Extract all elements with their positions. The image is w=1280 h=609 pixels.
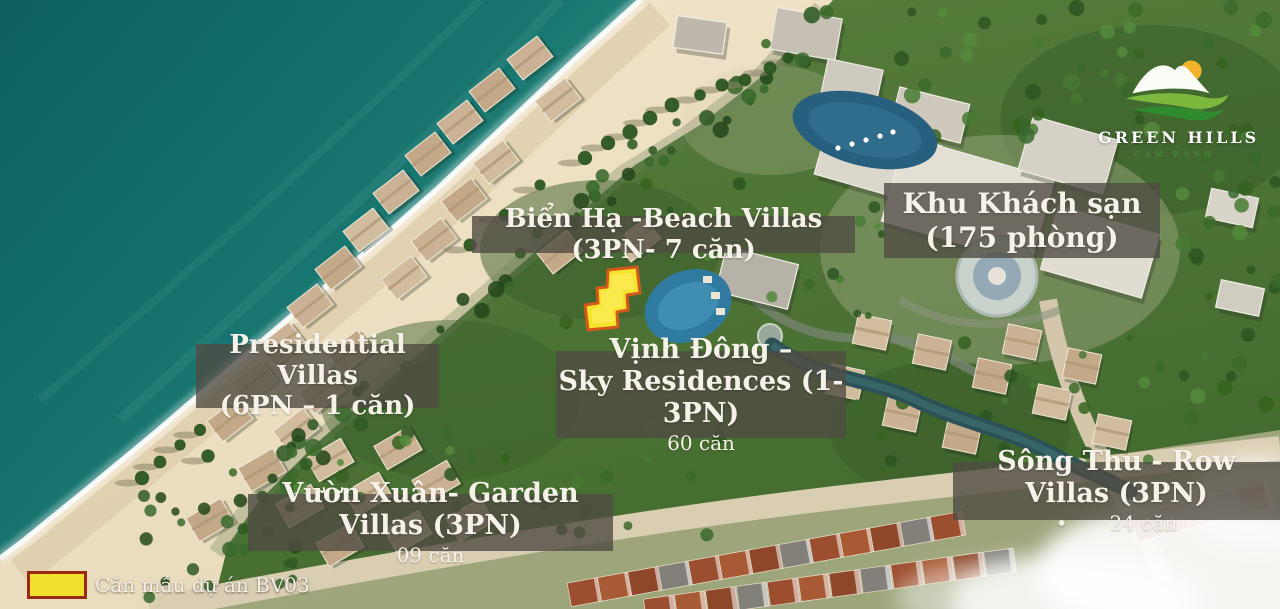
logo-emblem <box>1098 50 1252 124</box>
hotel-subtitle: (175 phòng) <box>884 221 1160 254</box>
green-hills-logo: GREEN HILLS CAM RANH <box>1098 50 1252 159</box>
wave-dark-icon <box>1132 107 1224 121</box>
garden-count: 09 căn <box>248 544 613 568</box>
label-beach-villas: Biển Hạ -Beach Villas (3PN- 7 căn) <box>472 216 855 253</box>
sky-subtitle: Sky Residences (1-3PN) <box>556 366 846 430</box>
beach-villas-title: Biển Hạ -Beach Villas (3PN- 7 căn) <box>472 204 855 265</box>
logo-title: GREEN HILLS <box>1098 128 1252 147</box>
label-hotel: Khu Khách sạn (175 phòng) <box>884 183 1160 258</box>
label-presidential-villas: Presidential Villas (6PN – 1 căn) <box>196 344 439 408</box>
logo-subtitle: CAM RANH <box>1098 150 1252 159</box>
masterplan-map: Biển Hạ -Beach Villas (3PN- 7 căn) Khu K… <box>0 0 1280 609</box>
label-garden-villas: Vườn Xuân- Garden Villas (3PN) 09 căn <box>248 494 613 551</box>
wave-icon <box>1126 93 1229 109</box>
hotel-title: Khu Khách sạn <box>884 187 1160 220</box>
label-row-villas: Sông Thu - Row Villas (3PN) • 24 căn <box>953 462 1280 520</box>
legend-swatch-icon <box>27 571 87 599</box>
sky-count: 60 căn <box>556 432 846 456</box>
row-villas-count: 24 căn <box>1109 512 1177 536</box>
label-sky-residences: Vịnh Đông – Sky Residences (1-3PN) 60 că… <box>556 351 846 438</box>
presidential-title: Presidential Villas <box>196 330 439 391</box>
row-villas-bullet: • <box>1056 512 1068 536</box>
row-villas-title: Sông Thu - Row Villas (3PN) <box>953 446 1280 510</box>
legend: Căn mẫu dự án BV03 <box>27 571 310 599</box>
presidential-subtitle: (6PN – 1 căn) <box>196 391 439 422</box>
garden-title: Vườn Xuân- Garden Villas (3PN) <box>248 478 613 542</box>
legend-label: Căn mẫu dự án BV03 <box>95 573 310 597</box>
sky-title: Vịnh Đông – <box>556 334 846 366</box>
